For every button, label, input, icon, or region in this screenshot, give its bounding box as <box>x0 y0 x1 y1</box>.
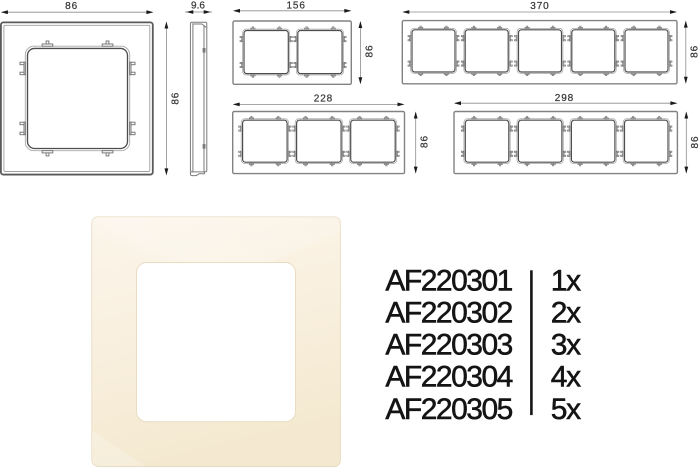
svg-text:2x: 2x <box>551 297 581 330</box>
svg-text:AF220302: AF220302 <box>385 297 512 330</box>
svg-text:156: 156 <box>286 0 305 11</box>
svg-text:3x: 3x <box>551 329 581 362</box>
svg-text:AF220301: AF220301 <box>385 265 512 298</box>
svg-text:86: 86 <box>170 92 181 105</box>
svg-text:228: 228 <box>314 93 333 104</box>
svg-text:9.6: 9.6 <box>191 1 205 12</box>
svg-text:AF220305: AF220305 <box>385 393 512 426</box>
svg-text:4x: 4x <box>551 361 581 394</box>
svg-text:5x: 5x <box>551 393 581 426</box>
svg-text:298: 298 <box>555 93 574 104</box>
svg-text:86: 86 <box>420 135 431 148</box>
svg-text:AF220304: AF220304 <box>385 361 512 394</box>
svg-text:AF220303: AF220303 <box>385 329 512 362</box>
svg-text:86: 86 <box>65 1 78 12</box>
svg-text:1x: 1x <box>551 265 581 298</box>
svg-text:86: 86 <box>364 45 375 58</box>
svg-text:86: 86 <box>690 136 700 149</box>
svg-text:370: 370 <box>530 1 549 12</box>
svg-text:86: 86 <box>690 45 700 58</box>
